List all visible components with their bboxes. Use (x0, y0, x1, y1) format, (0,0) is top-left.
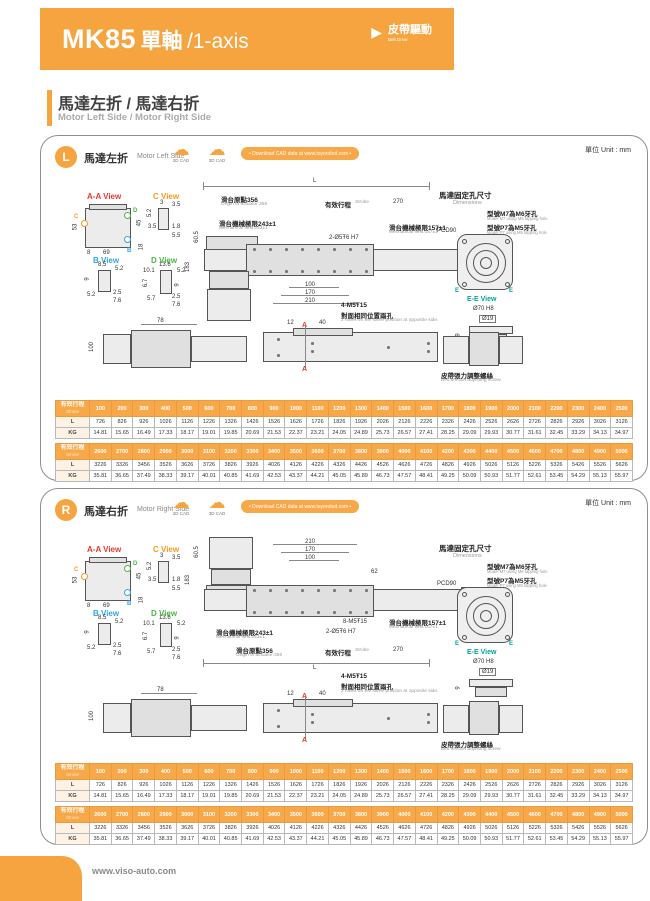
top-view-slider (293, 328, 353, 336)
stroke-value-header: 1400 (372, 401, 394, 417)
table-cell: 15.65 (111, 791, 133, 802)
table-cell: 3456 (133, 460, 155, 471)
dim-c35b: 3.5 (148, 577, 156, 583)
cad-3d-download[interactable]: ☁↓ 3D CAD (200, 494, 234, 516)
unit-label: 單位 Unit : mm (585, 498, 631, 508)
table-cell: 3226 (90, 823, 112, 834)
stroke-value-header: 1600 (415, 401, 437, 417)
belt-note-en: Belt tension adjusting screw. (441, 378, 502, 383)
stroke-value-header: 3500 (285, 444, 307, 460)
stroke-note-cn: 有效行程 (325, 199, 351, 209)
table-cell: 3926 (242, 823, 264, 834)
dim-d101: 10.1 (143, 268, 155, 274)
table-cell: 3126 (611, 780, 633, 791)
table-cell: 2226 (415, 417, 437, 428)
stroke-value-header: 3200 (220, 444, 242, 460)
a-mark-bottom: A (302, 737, 307, 744)
stroke-value-header: 3400 (263, 807, 285, 823)
dim-c55: 5.5 (172, 586, 180, 592)
table-cell: 35.81 (90, 834, 112, 845)
stroke-value-header: 1300 (350, 401, 372, 417)
e-marker-left: E (455, 641, 459, 647)
cad-2d-download[interactable]: ☁↓ 2D CAD (164, 141, 198, 163)
stroke-value-header: 1400 (372, 764, 394, 780)
table-cell: 45.89 (350, 471, 372, 482)
table-cell: 22.37 (285, 791, 307, 802)
table-cell: 47.57 (394, 834, 416, 845)
table-cell: 2226 (415, 780, 437, 791)
belt-unit-right (499, 705, 523, 733)
stroke-value-header: 2500 (611, 401, 633, 417)
table-cell: 40.01 (198, 471, 220, 482)
panel-motor-left-side: L 馬達左折 Motor Left Side ☁↓ 2D CAD ☁↓ 3D C… (40, 135, 648, 481)
dim-d67: 6.7 (143, 632, 149, 640)
c-marker: C (74, 214, 78, 220)
table-cell: 46.73 (372, 471, 394, 482)
dim-12: 12 (287, 691, 294, 697)
dim-b52: 5.2 (115, 619, 123, 625)
table-cell: 1326 (220, 780, 242, 791)
stroke-value-header: 4800 (567, 807, 589, 823)
table-cell: 48.41 (415, 834, 437, 845)
table-cell: 15.65 (111, 428, 133, 439)
belt-drive-arrow-icon: ▶ (371, 24, 382, 40)
table-cell: 42.53 (263, 834, 285, 845)
dim-b76: 7.6 (113, 651, 121, 657)
a-mark-bottom: A (302, 366, 307, 373)
table-cell: 55.13 (589, 834, 611, 845)
dim-12: 12 (287, 320, 294, 326)
e-marker-right: E (509, 641, 513, 647)
stroke-value-header: 2500 (611, 764, 633, 780)
model-name: MK85 (62, 24, 136, 54)
dim-c18: 1.8 (172, 577, 180, 583)
table-cell: 4926 (459, 823, 481, 834)
table-cell: 5126 (502, 823, 524, 834)
stroke-value-header: 1300 (350, 764, 372, 780)
table-cell: 14.81 (90, 791, 112, 802)
dim-62: 62 (371, 569, 378, 575)
limit157-en: Mechanical limit:157±1 (389, 625, 438, 630)
stroke-value-header: 1500 (394, 764, 416, 780)
stroke-value-header: 100 (90, 764, 112, 780)
stroke-value-header: 2700 (111, 444, 133, 460)
stroke-value-header: 4800 (567, 444, 589, 460)
row-label-cell: KG (56, 428, 90, 439)
table-cell: 3326 (111, 823, 133, 834)
table-cell: 5526 (589, 823, 611, 834)
table-cell: 49.25 (437, 471, 459, 482)
table-cell: 4826 (437, 460, 459, 471)
b-marker-ring (124, 589, 131, 596)
dim-c35: 3.5 (172, 555, 180, 561)
table-cell: 39.17 (176, 471, 198, 482)
table-cell: 29.93 (480, 428, 502, 439)
axis-label-cn: 單軸 (140, 30, 182, 53)
dim-b52: 5.2 (115, 266, 123, 272)
table-cell: 726 (90, 780, 112, 791)
table-cell: 28.25 (437, 428, 459, 439)
table-cell: 826 (111, 417, 133, 428)
d-marker-ring (124, 565, 131, 572)
table-cell: 5026 (480, 460, 502, 471)
dim-o70: Ø70 H8 (473, 306, 494, 312)
panel-badge-left: L (55, 146, 77, 168)
table-cell: 24.89 (350, 428, 372, 439)
table-cell: 3626 (176, 460, 198, 471)
table-cell: 3626 (176, 823, 198, 834)
dim-183: 183 (185, 575, 191, 585)
dim-b52b: 5.2 (87, 645, 95, 651)
row-label-cell: KG (56, 834, 90, 845)
stroke-header-cell: 有效行程Stroke (56, 401, 90, 417)
table-cell: 2426 (459, 417, 481, 428)
table-cell: 1826 (328, 417, 350, 428)
table-cell: 1026 (155, 780, 177, 791)
stroke-value-header: 900 (263, 401, 285, 417)
dim-tick (203, 182, 204, 190)
dim-tick (429, 182, 430, 190)
limit243-en: Mechanical limit:243±1 (219, 226, 268, 231)
dim-100v: 100 (89, 711, 95, 721)
table-cell: 3126 (611, 417, 633, 428)
dim-d136: 13.6 (159, 615, 171, 621)
panel-badge-right: R (55, 499, 77, 521)
stroke-value-header: 4100 (415, 444, 437, 460)
stroke-value-header: 700 (220, 401, 242, 417)
table-cell: 46.73 (372, 834, 394, 845)
table-cell: 2826 (546, 417, 568, 428)
c-view-drawing (158, 561, 169, 583)
stroke-value-header: 2600 (90, 444, 112, 460)
d-view-drawing (160, 623, 172, 647)
side-motor-body (131, 699, 191, 737)
stroke-value-header: 4400 (480, 807, 502, 823)
cad-2d-download[interactable]: ☁↓ 2D CAD (164, 494, 198, 516)
stroke-value-header: 3300 (242, 807, 264, 823)
dim-L: L (313, 178, 316, 184)
dim-b25: 2.5 (113, 290, 121, 296)
stroke-value-header: 3000 (176, 807, 198, 823)
table-cell: 5326 (546, 823, 568, 834)
table-cell: 24.89 (350, 791, 372, 802)
dim-o19: Ø19 (479, 315, 496, 323)
holes4-en: 2 holes on the same position at opposite… (341, 318, 438, 323)
table-cell: 19.01 (198, 791, 220, 802)
ee-shaft-bottom (475, 687, 507, 697)
table-cell: 2426 (459, 780, 481, 791)
table-cell: 5626 (611, 823, 633, 834)
c-marker: C (74, 567, 78, 573)
dim-45: 45 (136, 573, 142, 580)
dim-183: 183 (185, 262, 191, 272)
stroke-value-header: 4900 (589, 444, 611, 460)
table-cell: 4626 (394, 460, 416, 471)
table-cell: 50.93 (480, 834, 502, 845)
download-cad-pill[interactable]: • Download CAD data at www.toyorobot.com… (241, 500, 359, 513)
holes4-cn: 4-M5Ŧ15 (341, 302, 367, 309)
origin-note-en: Origin of actuator:356 (236, 653, 282, 658)
motor-flange-drawing (457, 587, 513, 643)
table-cell: 43.37 (285, 834, 307, 845)
dim-8: 8 (87, 250, 90, 256)
dim-d76: 7.6 (172, 302, 180, 308)
table-cell: 24.05 (328, 428, 350, 439)
belt-unit-mid (469, 701, 499, 735)
stroke-value-header: 2300 (567, 401, 589, 417)
origin-note-en: Origin of actuator:356 (221, 202, 267, 207)
dim-d57: 5.7 (147, 649, 155, 655)
stroke-value-header: 4100 (415, 807, 437, 823)
table-cell: 2726 (524, 417, 546, 428)
dim-270: 270 (393, 199, 403, 205)
table-cell: 2126 (394, 417, 416, 428)
table-cell: 2926 (567, 780, 589, 791)
table-cell: 3326 (111, 460, 133, 471)
table-cell: 4926 (459, 460, 481, 471)
table-cell: 32.45 (546, 428, 568, 439)
top-view-slider (293, 699, 353, 707)
dim-c18: 1.8 (172, 224, 180, 230)
table-cell: 21.53 (263, 428, 285, 439)
table-cell: 29.09 (459, 791, 481, 802)
stroke-value-header: 200 (111, 764, 133, 780)
table-cell: 52.61 (524, 471, 546, 482)
top-view-screws (277, 709, 280, 712)
table-cell: 18.17 (176, 791, 198, 802)
table-cell: 1426 (242, 417, 264, 428)
top-view-screws (277, 338, 280, 341)
stroke-value-header: 2900 (155, 807, 177, 823)
table-cell: 4026 (263, 460, 285, 471)
stroke-value-header: 800 (242, 764, 264, 780)
stroke-note-en: Stroke (355, 648, 369, 653)
b-marker: B (127, 601, 131, 607)
table-cell: 4126 (285, 460, 307, 471)
table-cell: 2526 (480, 417, 502, 428)
belt-unit-right (499, 336, 523, 364)
stroke-value-header: 900 (263, 764, 285, 780)
c-marker-ring (81, 573, 88, 580)
table-cell: 34.13 (589, 428, 611, 439)
stroke-value-header: 2800 (133, 444, 155, 460)
holes2-note: 2-Ø5Ŧ6 H7 (326, 629, 356, 635)
stroke-value-header: 4700 (546, 807, 568, 823)
table-cell: 5426 (567, 460, 589, 471)
stroke-value-header: 4300 (459, 807, 481, 823)
stroke-note-cn: 有效行程 (325, 647, 351, 657)
table-cell: 2726 (524, 780, 546, 791)
stroke-value-header: 2900 (155, 444, 177, 460)
table-cell: 4826 (437, 823, 459, 834)
table-cell: 726 (90, 417, 112, 428)
footer-website-link[interactable]: www.viso-auto.com (92, 866, 176, 876)
table-cell: 2526 (480, 780, 502, 791)
drive-type-cn: 皮帶驅動 (388, 24, 432, 37)
slider-block (246, 585, 374, 617)
table-cell: 2026 (372, 780, 394, 791)
table-cell: 37.49 (133, 834, 155, 845)
stroke-table-block: 有效行程Stroke100200300400500600700800900100… (55, 763, 633, 802)
e-marker-right: E (509, 288, 513, 294)
table-cell: 5426 (567, 823, 589, 834)
table-cell: 14.81 (90, 428, 112, 439)
table-cell: 37.49 (133, 471, 155, 482)
dim-L: L (313, 665, 316, 671)
table-cell: 1126 (176, 417, 198, 428)
dim-tick (203, 659, 204, 667)
dim-line-170 (281, 295, 349, 296)
dim-line-100 (289, 560, 339, 561)
row-label-cell: KG (56, 471, 90, 482)
stroke-value-header: 2100 (524, 764, 546, 780)
dim-605: 60.5 (194, 546, 200, 558)
row-label-cell: L (56, 780, 90, 791)
belt-unit-mid (469, 332, 499, 366)
table-cell: 19.01 (198, 428, 220, 439)
table-cell: 23.21 (307, 428, 329, 439)
dim-d67: 6.7 (143, 279, 149, 287)
table-cell: 1626 (285, 780, 307, 791)
cloud-download-icon: ☁↓ (200, 141, 234, 158)
table-cell: 1126 (176, 780, 198, 791)
stroke-value-header: 1700 (437, 764, 459, 780)
cloud-download-icon: ☁↓ (164, 494, 198, 511)
stroke-value-header: 400 (155, 764, 177, 780)
table-cell: 1526 (263, 780, 285, 791)
download-cad-pill[interactable]: • Download CAD data at www.toyorobot.com… (241, 147, 359, 160)
dim-b52b: 5.2 (87, 292, 95, 298)
dim-b85: 8.5 (98, 262, 106, 268)
stroke-value-header: 4400 (480, 444, 502, 460)
dim-c55: 5.5 (172, 233, 180, 239)
table-cell: 50.09 (459, 471, 481, 482)
table-cell: 1926 (350, 780, 372, 791)
limit243-en: Mechanical limit:243±1 (216, 635, 265, 640)
dim-53: 53 (72, 224, 78, 231)
table-cell: 2326 (437, 417, 459, 428)
table-cell: 826 (111, 780, 133, 791)
stroke-value-header: 2000 (502, 764, 524, 780)
dim-53: 53 (72, 577, 78, 584)
stroke-note-en: Stroke (355, 200, 369, 205)
header-banner: MK85 單軸 /1-axis ▶ 皮帶驅動 Belt Drive (40, 8, 454, 70)
stroke-value-header: 1200 (328, 401, 350, 417)
m7-note-en: Model M7 using M6 tapping hole (487, 216, 548, 221)
table-cell: 4226 (307, 460, 329, 471)
table-cell: 53.45 (546, 834, 568, 845)
motor-flange-drawing (457, 234, 513, 290)
dim-d25: 2.5 (172, 294, 180, 300)
table-cell: 2826 (546, 780, 568, 791)
belt-note-en: Belt tension adjusting screw. (441, 747, 502, 752)
table-cell: 20.69 (242, 791, 264, 802)
table-cell: 36.65 (111, 471, 133, 482)
c-view-drawing (158, 208, 169, 230)
table-cell: 34.97 (611, 791, 633, 802)
stroke-value-header: 5000 (611, 807, 633, 823)
motor-body (207, 289, 251, 321)
table-cell: 28.25 (437, 791, 459, 802)
table-cell: 27.41 (415, 791, 437, 802)
row-label-cell: KG (56, 791, 90, 802)
table-cell: 25.73 (372, 791, 394, 802)
table-cell: 55.13 (589, 471, 611, 482)
stroke-value-header: 4700 (546, 444, 568, 460)
dim-line-78 (141, 693, 197, 694)
stroke-value-header: 2100 (524, 401, 546, 417)
stroke-table-block: 有效行程Stroke260027002800290030003100320033… (55, 806, 633, 845)
table-cell: 1626 (285, 417, 307, 428)
table-cell: 4226 (307, 823, 329, 834)
stroke-value-header: 2300 (567, 764, 589, 780)
table-cell: 27.41 (415, 428, 437, 439)
dim-b85: 8.5 (98, 615, 106, 621)
page-title: MK85 單軸 /1-axis (62, 24, 249, 55)
stroke-table-block: 有效行程Stroke260027002800290030003100320033… (55, 443, 633, 482)
table-cell: 26.57 (394, 791, 416, 802)
table-cell: 3526 (155, 460, 177, 471)
slider-block (246, 244, 374, 276)
dim-18: 18 (138, 597, 144, 604)
table-cell: 38.33 (155, 834, 177, 845)
row-label-cell: L (56, 460, 90, 471)
ee-shaft-top (469, 679, 513, 687)
table-cell: 19.85 (220, 791, 242, 802)
table-cell: 1426 (242, 780, 264, 791)
stroke-value-header: 300 (133, 401, 155, 417)
table-cell: 30.77 (502, 791, 524, 802)
row-label-cell: L (56, 417, 90, 428)
table-cell: 5126 (502, 460, 524, 471)
table-cell: 1026 (155, 417, 177, 428)
stroke-value-header: 2200 (546, 764, 568, 780)
table-cell: 23.21 (307, 791, 329, 802)
stroke-value-header: 1100 (307, 401, 329, 417)
dim-d9: 9 (175, 636, 181, 639)
table-cell: 29.09 (459, 428, 481, 439)
stroke-value-header: 300 (133, 764, 155, 780)
table-cell: 4326 (328, 823, 350, 834)
table-cell: 3926 (242, 460, 264, 471)
table-cell: 3826 (220, 823, 242, 834)
stroke-value-header: 2400 (589, 764, 611, 780)
table-cell: 33.29 (567, 791, 589, 802)
cloud-download-icon: ☁↓ (200, 494, 234, 511)
dim-d25: 2.5 (172, 647, 180, 653)
table-cell: 5026 (480, 823, 502, 834)
dim-18: 18 (138, 244, 144, 251)
stroke-value-header: 4500 (502, 807, 524, 823)
unit-label: 單位 Unit : mm (585, 145, 631, 155)
cad-3d-download[interactable]: ☁↓ 3D CAD (200, 141, 234, 163)
stroke-value-header: 500 (176, 401, 198, 417)
stroke-value-header: 1700 (437, 401, 459, 417)
stroke-value-header: 3300 (242, 444, 264, 460)
stroke-value-header: 2000 (502, 401, 524, 417)
table-cell: 45.05 (328, 834, 350, 845)
stroke-value-header: 800 (242, 401, 264, 417)
dim-b9: 9 (85, 630, 91, 633)
dim-line-170 (281, 552, 349, 553)
panel-title-cn: 馬達右折 (84, 503, 128, 519)
table-cell: 38.33 (155, 471, 177, 482)
holes8-note: 8-M5Ŧ15 (343, 619, 367, 625)
holes2-note: 2-Ø5Ŧ6 H7 (329, 235, 359, 241)
belt-unit-left (443, 705, 469, 733)
table-cell: 26.57 (394, 428, 416, 439)
stroke-header-cell: 有效行程Stroke (56, 807, 90, 823)
